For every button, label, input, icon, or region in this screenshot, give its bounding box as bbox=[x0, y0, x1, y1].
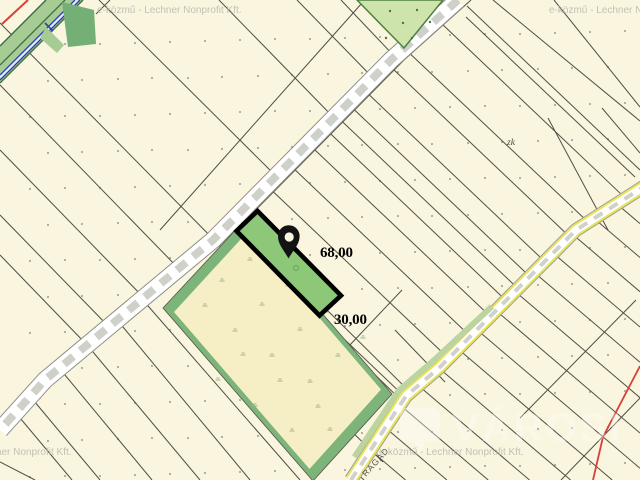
svg-text:VÁROSI: VÁROSI bbox=[452, 405, 623, 450]
svg-text:e-közmű - Lechner Nonprofit Kf: e-közmű - Lechner Nonprofit Kft. bbox=[549, 5, 640, 16]
svg-text:68,00: 68,00 bbox=[320, 245, 353, 261]
svg-text:zk: zk bbox=[506, 138, 516, 148]
svg-text:e-közmű - Lechner Nonprofit Kf: e-közmű - Lechner Nonprofit Kft. bbox=[0, 447, 72, 458]
svg-text:e-közmű - Lechner Nonprofit Kf: e-közmű - Lechner Nonprofit Kft. bbox=[97, 5, 242, 16]
svg-text:30,00: 30,00 bbox=[334, 312, 367, 328]
